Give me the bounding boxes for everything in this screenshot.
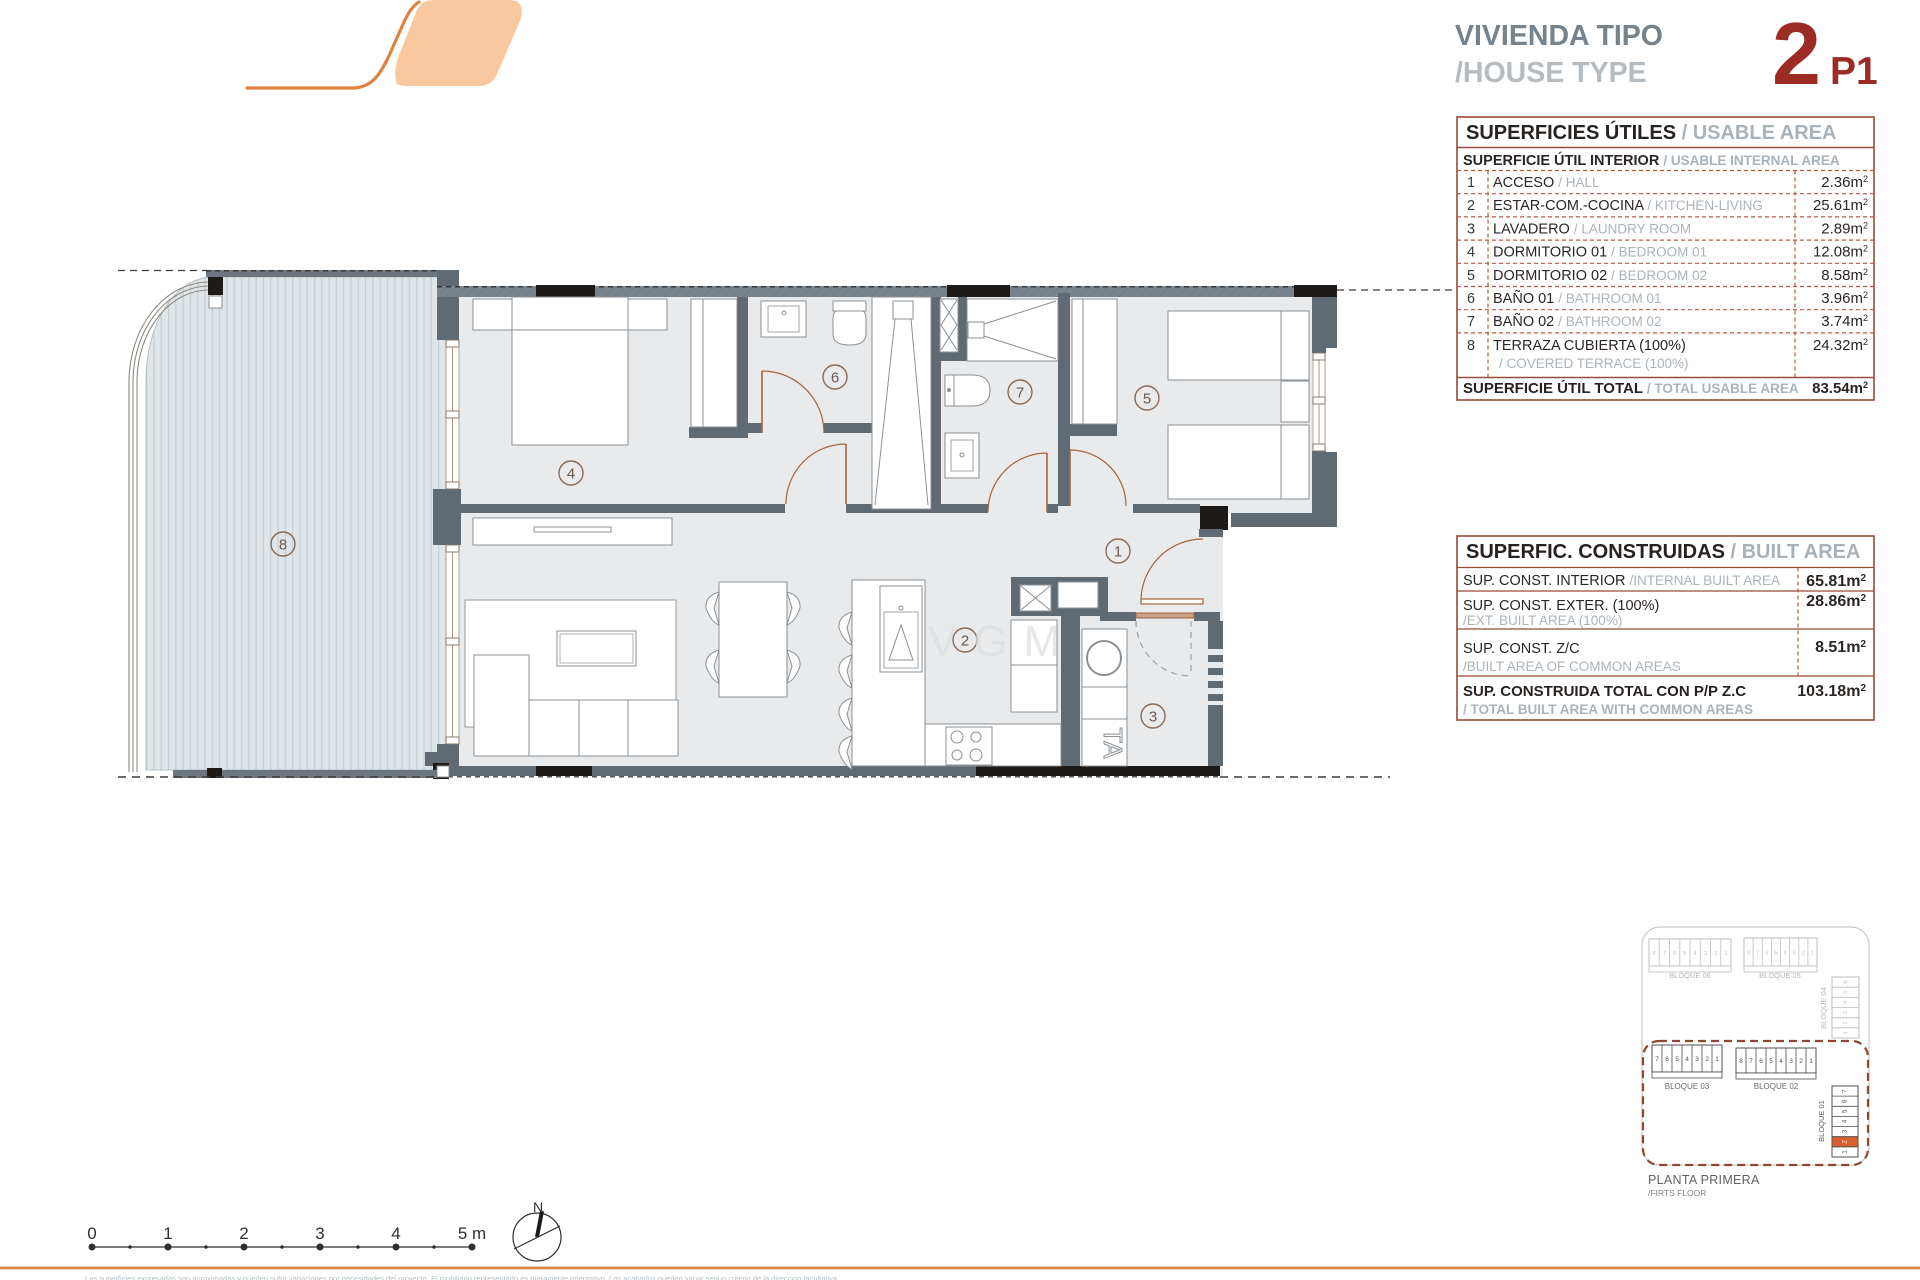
svg-text:3: 3 — [1704, 951, 1707, 957]
svg-text:2.89m2: 2.89m2 — [1821, 220, 1868, 237]
svg-text:4: 4 — [1694, 951, 1697, 957]
svg-text:5: 5 — [1467, 268, 1475, 284]
svg-text:6: 6 — [1467, 291, 1475, 307]
svg-text:2: 2 — [1714, 951, 1717, 957]
svg-text:P1: P1 — [1830, 50, 1878, 93]
svg-text:2: 2 — [1705, 1056, 1709, 1063]
svg-text:DORMITORIO 01 / BEDROOM 01: DORMITORIO 01 / BEDROOM 01 — [1493, 245, 1707, 261]
svg-text:8: 8 — [1739, 1058, 1743, 1065]
svg-text:5: 5 — [1843, 991, 1849, 994]
svg-text:7: 7 — [1663, 951, 1666, 957]
svg-text:8: 8 — [279, 537, 287, 554]
svg-text:4: 4 — [1467, 245, 1475, 261]
svg-text:8.58m2: 8.58m2 — [1821, 267, 1868, 284]
svg-text:8.51m2: 8.51m2 — [1815, 639, 1866, 656]
svg-text:/ COVERED TERRACE (100%): / COVERED TERRACE (100%) — [1499, 356, 1689, 371]
svg-text:BLOQUE 03: BLOQUE 03 — [1665, 1082, 1710, 1091]
svg-text:BLOQUE 02: BLOQUE 02 — [1754, 1082, 1799, 1091]
svg-text:/FIRTS FLOOR: /FIRTS FLOOR — [1648, 1188, 1706, 1198]
svg-text:Las superficies expresadas son: Las superficies expresadas son aproximad… — [85, 1274, 839, 1280]
svg-text:7: 7 — [1016, 385, 1024, 402]
svg-text:BLOQUE 01: BLOQUE 01 — [1817, 1100, 1826, 1142]
svg-text:2: 2 — [1799, 1058, 1803, 1065]
svg-text:7: 7 — [1749, 1058, 1753, 1065]
svg-text:4: 4 — [567, 466, 575, 483]
svg-text:7: 7 — [1467, 314, 1475, 330]
svg-text:3: 3 — [1695, 1056, 1699, 1063]
svg-text:SUP. CONST. INTERIOR /INTERNAL: SUP. CONST. INTERIOR /INTERNAL BUILT ARE… — [1463, 573, 1780, 589]
svg-text:2: 2 — [1802, 951, 1805, 957]
svg-text:DORMITORIO 02 / BEDROOM 02: DORMITORIO 02 / BEDROOM 02 — [1493, 268, 1707, 284]
svg-text:SUP. CONST. EXTER. (100%): SUP. CONST. EXTER. (100%) — [1463, 598, 1659, 614]
svg-text:1: 1 — [1724, 951, 1727, 957]
svg-text:2: 2 — [1467, 198, 1475, 214]
svg-text:5: 5 — [1683, 951, 1686, 957]
svg-text:/ TOTAL BUILT AREA WITH COMMON: / TOTAL BUILT AREA WITH COMMON AREAS — [1463, 702, 1753, 717]
svg-text:1: 1 — [1114, 544, 1122, 561]
svg-text:LAVADERO / LAUNDRY ROOM: LAVADERO / LAUNDRY ROOM — [1493, 221, 1691, 237]
svg-text:/EXT. BUILT AREA (100%): /EXT. BUILT AREA (100%) — [1463, 613, 1622, 628]
svg-text:4: 4 — [1779, 1058, 1783, 1065]
svg-text:3: 3 — [1843, 1011, 1849, 1014]
svg-text:8: 8 — [1467, 338, 1475, 354]
svg-text:/BUILT AREA OF COMMON AREAS: /BUILT AREA OF COMMON AREAS — [1463, 659, 1681, 674]
svg-text:3: 3 — [315, 1224, 324, 1243]
svg-text:BLOQUE 04: BLOQUE 04 — [1819, 987, 1828, 1029]
svg-text:1: 1 — [1843, 1031, 1849, 1034]
svg-text:BLOQUE 06: BLOQUE 06 — [1669, 971, 1711, 980]
svg-text:5 m: 5 m — [458, 1224, 486, 1243]
svg-text:8: 8 — [1653, 951, 1656, 957]
svg-text:6: 6 — [1765, 951, 1768, 957]
svg-text:1: 1 — [1811, 951, 1814, 957]
svg-text:SUPERFICIE ÚTIL TOTAL / TOTAL: SUPERFICIE ÚTIL TOTAL / TOTAL USABLE ARE… — [1463, 379, 1799, 397]
svg-text:TERRAZA CUBIERTA (100%): TERRAZA CUBIERTA (100%) — [1493, 338, 1686, 354]
svg-text:6: 6 — [1673, 951, 1676, 957]
svg-text:5: 5 — [1774, 951, 1777, 957]
svg-text:3.74m2: 3.74m2 — [1821, 313, 1868, 330]
svg-text:28.86m2: 28.86m2 — [1806, 593, 1866, 610]
svg-text:BLOQUE 05: BLOQUE 05 — [1759, 971, 1801, 980]
svg-text:1: 1 — [163, 1224, 172, 1243]
svg-text:ACCESO / HALL: ACCESO / HALL — [1493, 175, 1600, 191]
svg-text:PLANTA PRIMERA: PLANTA PRIMERA — [1648, 1173, 1760, 1187]
svg-text:103.18m2: 103.18m2 — [1797, 683, 1866, 700]
svg-text:4: 4 — [1685, 1056, 1689, 1063]
svg-text:1: 1 — [1467, 175, 1475, 191]
svg-text:3.96m2: 3.96m2 — [1821, 290, 1868, 307]
svg-text:83.54m2: 83.54m2 — [1812, 380, 1868, 397]
svg-text:7: 7 — [1756, 951, 1759, 957]
svg-text:SUP. CONSTRUIDA TOTAL CON P/P: SUP. CONSTRUIDA TOTAL CON P/P Z.C — [1463, 683, 1746, 700]
svg-text:24.32m2: 24.32m2 — [1813, 337, 1868, 354]
svg-text:6: 6 — [1843, 981, 1849, 984]
svg-text:SUPERFICIE ÚTIL INTERIOR / USA: SUPERFICIE ÚTIL INTERIOR / USABLE INTERN… — [1463, 151, 1840, 169]
svg-text:1: 1 — [1809, 1058, 1813, 1065]
svg-text:SUPERFIC. CONSTRUIDAS / BUILT: SUPERFIC. CONSTRUIDAS / BUILT AREA — [1466, 541, 1860, 563]
svg-text:5: 5 — [1769, 1058, 1773, 1065]
svg-text:VGM: VGM — [928, 617, 1076, 666]
svg-text:3: 3 — [1467, 221, 1475, 237]
svg-text:BAÑO 01 / BATHROOM 01: BAÑO 01 / BATHROOM 01 — [1493, 290, 1662, 307]
svg-text:4: 4 — [1784, 951, 1787, 957]
svg-text:2.36m2: 2.36m2 — [1821, 174, 1868, 191]
svg-text:2: 2 — [1843, 1021, 1849, 1024]
svg-text:0: 0 — [87, 1224, 96, 1243]
svg-text:2: 2 — [239, 1224, 248, 1243]
svg-text:5: 5 — [1675, 1056, 1679, 1063]
svg-text:TA: TA — [1098, 727, 1128, 759]
svg-text:1: 1 — [1715, 1056, 1719, 1063]
svg-text:7: 7 — [1655, 1056, 1659, 1063]
svg-text:4: 4 — [391, 1224, 400, 1243]
svg-text:VIVIENDA TIPO: VIVIENDA TIPO — [1455, 20, 1663, 52]
svg-text:/HOUSE TYPE: /HOUSE TYPE — [1455, 57, 1647, 89]
svg-text:5: 5 — [1143, 391, 1151, 408]
svg-text:3: 3 — [1149, 709, 1157, 726]
svg-text:2: 2 — [1772, 4, 1821, 103]
svg-text:12.08m2: 12.08m2 — [1813, 244, 1868, 261]
svg-text:SUPERFICIES ÚTILES / USABLE AR: SUPERFICIES ÚTILES / USABLE AREA — [1466, 120, 1836, 144]
svg-text:BAÑO 02 / BATHROOM 02: BAÑO 02 / BATHROOM 02 — [1493, 313, 1662, 330]
svg-text:N: N — [533, 1199, 543, 1215]
svg-text:SUP. CONST. Z/C: SUP. CONST. Z/C — [1463, 641, 1580, 657]
svg-text:3: 3 — [1789, 1058, 1793, 1065]
svg-text:25.61m2: 25.61m2 — [1813, 197, 1868, 214]
svg-text:65.81m2: 65.81m2 — [1806, 573, 1866, 590]
svg-text:3: 3 — [1793, 951, 1796, 957]
svg-text:4: 4 — [1843, 1001, 1849, 1004]
svg-text:6: 6 — [831, 370, 839, 387]
svg-text:6: 6 — [1759, 1058, 1763, 1065]
svg-text:ESTAR-COM.-COCINA / KITCHEN-LI: ESTAR-COM.-COCINA / KITCHEN-LIVING — [1493, 198, 1763, 214]
svg-text:6: 6 — [1665, 1056, 1669, 1063]
svg-text:8: 8 — [1747, 951, 1750, 957]
